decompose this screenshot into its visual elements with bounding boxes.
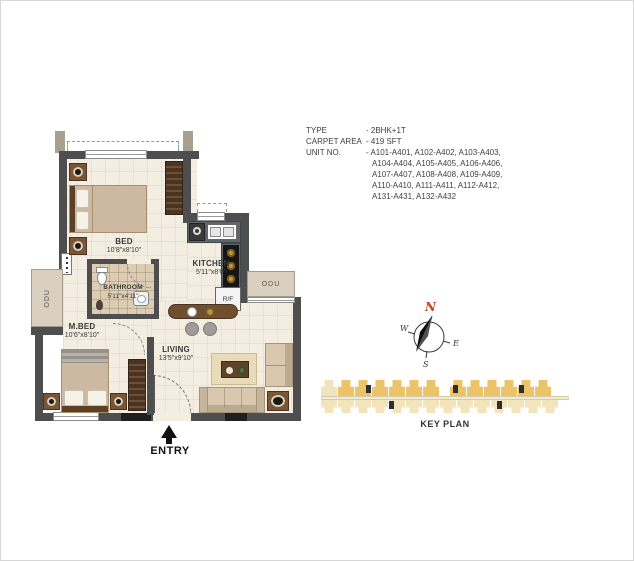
- entry-door-leaf: [153, 375, 155, 413]
- nightstand-mbed-left: [43, 393, 60, 410]
- wall-mbed-left: [35, 331, 43, 421]
- kitchen-room-dimension: 5'11"x8'0": [183, 268, 239, 277]
- kitchen-label-block: KITCHEN 5'11"x8'0": [183, 259, 239, 277]
- bathroom-room-label: BATHROOM: [93, 283, 153, 292]
- bed-room-label: BED: [93, 237, 155, 246]
- dining-bar: [168, 304, 238, 319]
- wardrobe-mbed: [128, 359, 146, 411]
- bed-double-bed: [69, 185, 147, 233]
- key-plan-building-row-bottom: [321, 400, 559, 413]
- pillow: [76, 211, 89, 230]
- kitchen-projection-dashed: [197, 203, 227, 212]
- compass-south-label: S: [423, 360, 429, 369]
- info-row-unit-no: UNIT NO. - A101-A401, A102-A402, A103-A4…: [306, 147, 526, 202]
- lamp-icon: [47, 397, 56, 406]
- key-plan-unit: [338, 400, 354, 413]
- sofa-armrest: [200, 388, 208, 412]
- unit-no-label: UNIT NO.: [306, 147, 366, 202]
- shower-icon: [96, 300, 103, 310]
- key-plan-unit: [321, 380, 337, 396]
- unit-numbers-line: A104-A404, A105-A405, A106-A406,: [366, 158, 502, 169]
- compass-west-label: W: [400, 324, 409, 333]
- table-decor-plate: [226, 367, 233, 374]
- key-plan-unit: [406, 400, 422, 413]
- carpet-area-value: - 419 SFT: [366, 136, 402, 147]
- window-mbed-bottom: [53, 412, 99, 421]
- bed-label-block: BED 10'8"x8'10": [93, 237, 155, 255]
- kitchen-room-label: KITCHEN: [183, 259, 239, 268]
- key-plan-core-marker: [519, 385, 524, 393]
- sofa-side-back: [285, 344, 292, 386]
- type-value: - 2BHK+1T: [366, 125, 406, 136]
- lamp-icon: [114, 397, 123, 406]
- pillow: [64, 390, 84, 406]
- wall-bathroom-bottom: [87, 314, 159, 319]
- unit-numbers-line: A107-A407, A108-A408, A109-A409,: [366, 169, 502, 180]
- key-plan-unit: [457, 400, 473, 413]
- bed-blanket-fold: [92, 186, 93, 232]
- sofa-cushion-lines: [208, 388, 258, 407]
- key-plan-core-marker: [497, 401, 502, 409]
- window-bed-top: [85, 150, 147, 159]
- key-plan-unit: [355, 400, 371, 413]
- key-plan-core-marker: [366, 385, 371, 393]
- pillow: [76, 189, 89, 208]
- lamp-icon: [73, 167, 83, 177]
- compass-icon: N W E S: [399, 297, 461, 369]
- key-plan-core-marker: [389, 401, 394, 409]
- sofa-armrest: [256, 388, 264, 412]
- living-wall-accent: [225, 413, 247, 421]
- key-plan-unit: [542, 400, 558, 413]
- key-plan-unit: [484, 380, 500, 396]
- bowl-icon: [205, 307, 215, 317]
- side-table-living: [267, 391, 289, 411]
- mbed-label-block: M.BED 10'6"x8'10": [49, 322, 115, 340]
- railing-odu-right: [247, 297, 295, 303]
- key-plan-unit: [440, 400, 456, 413]
- mbed-room-dimension: 10'6"x8'10": [49, 331, 115, 340]
- key-plan: KEY PLAN: [321, 379, 571, 431]
- kitchen-sink-icon: [207, 224, 237, 240]
- entry-door-opening: [153, 413, 191, 421]
- entry-arrow-stem: [166, 437, 172, 444]
- key-plan-unit: [423, 380, 439, 396]
- info-row-carpet-area: CARPET AREA - 419 SFT: [306, 136, 526, 147]
- lamp-icon: [73, 241, 83, 251]
- type-label: TYPE: [306, 125, 366, 136]
- nightstand-bed-top: [69, 163, 87, 181]
- carpet-area-label: CARPET AREA: [306, 136, 366, 147]
- unit-numbers-line: A131-A431, A132-A432: [366, 191, 502, 202]
- key-plan-unit: [338, 380, 354, 396]
- sofa-side-cushion-line: [266, 365, 286, 366]
- key-plan-unit: [389, 380, 405, 396]
- odu-platform-right: ODU: [247, 271, 295, 297]
- living-label-block: LIVING 13'5"x9'10": [146, 345, 206, 363]
- key-plan-unit: [501, 380, 517, 396]
- mbed-folded-blanket: [62, 350, 108, 363]
- key-plan-unit: [321, 400, 337, 413]
- mbed-headboard: [62, 406, 108, 412]
- bed-room-dimension: 10'8"x8'10": [93, 246, 155, 255]
- washing-machine-door: [193, 227, 201, 235]
- sink-basin: [210, 227, 221, 237]
- entry-label: ENTRY: [139, 445, 201, 457]
- key-plan-unit: [372, 380, 388, 396]
- key-plan-unit: [372, 400, 388, 413]
- compass-north-label: N: [424, 300, 437, 314]
- stool-icon: [185, 322, 199, 336]
- wall-stub-top-left: [55, 131, 65, 153]
- bathroom-room-dimension: 5'11"x4'11": [93, 292, 153, 301]
- key-plan-unit: [474, 400, 490, 413]
- key-plan-unit: [406, 380, 422, 396]
- bed-headboard: [70, 186, 75, 232]
- key-plan-unit: [467, 380, 483, 396]
- compass-east-label: E: [452, 339, 459, 348]
- wall-stub-top-right: [183, 131, 193, 153]
- wall-bathroom-right: [154, 259, 159, 319]
- table-plant-icon: [238, 366, 246, 375]
- key-plan-unit: [508, 400, 524, 413]
- key-plan-unit: [535, 380, 551, 396]
- key-plan-building-row-top: [321, 380, 552, 396]
- key-plan-core-marker: [453, 385, 458, 393]
- mbed-room-label: M.BED: [49, 322, 115, 331]
- coffee-table: [221, 361, 249, 378]
- wall-living-right: [293, 297, 301, 421]
- odu-left-label: ODU: [44, 289, 51, 308]
- wall-bed-left: [59, 151, 67, 269]
- sofa-side: [265, 343, 293, 387]
- washing-machine-icon: [189, 223, 205, 241]
- plate-icon: [187, 307, 197, 317]
- refrigerator-label: R/F: [223, 296, 233, 303]
- stool-icon: [203, 322, 217, 336]
- lamp-icon: [271, 395, 285, 407]
- odu-platform-left: ODU: [31, 269, 63, 327]
- unit-numbers-line: A110-A410, A111-A411, A112-A412,: [366, 180, 502, 191]
- key-plan-unit: [525, 400, 541, 413]
- unit-info-block: TYPE - 2BHK+1T CARPET AREA - 419 SFT UNI…: [306, 125, 526, 202]
- sofa-main: [199, 387, 265, 413]
- nightstand-mbed-right: [110, 393, 127, 410]
- pillow: [87, 390, 107, 406]
- mbed-double-bed: [61, 349, 109, 413]
- living-room-dimension: 13'5"x9'10": [146, 354, 206, 363]
- wardrobe-bed: [165, 161, 183, 215]
- unit-numbers-line: - A101-A401, A102-A402, A103-A403,: [366, 147, 502, 158]
- bathroom-label-block: BATHROOM 5'11"x4'11": [93, 283, 153, 301]
- key-plan-unit: [423, 400, 439, 413]
- burner: [227, 249, 235, 257]
- living-room-label: LIVING: [146, 345, 206, 354]
- nightstand-bed-bottom: [69, 237, 87, 255]
- key-plan-building-gap: [440, 380, 450, 396]
- odu-right-label: ODU: [262, 281, 281, 288]
- key-plan-label: KEY PLAN: [321, 419, 569, 429]
- info-row-type: TYPE - 2BHK+1T: [306, 125, 526, 136]
- wall-bathroom-left: [87, 259, 92, 319]
- floor-plan-page: BATHROOM 5'11"x4'11" ODU ODU BED 10'8"x8…: [0, 0, 634, 561]
- floor-plan: BATHROOM 5'11"x4'11" ODU ODU BED 10'8"x8…: [1, 1, 633, 560]
- window-kitchen-top: [197, 212, 225, 221]
- sink-basin: [223, 227, 234, 237]
